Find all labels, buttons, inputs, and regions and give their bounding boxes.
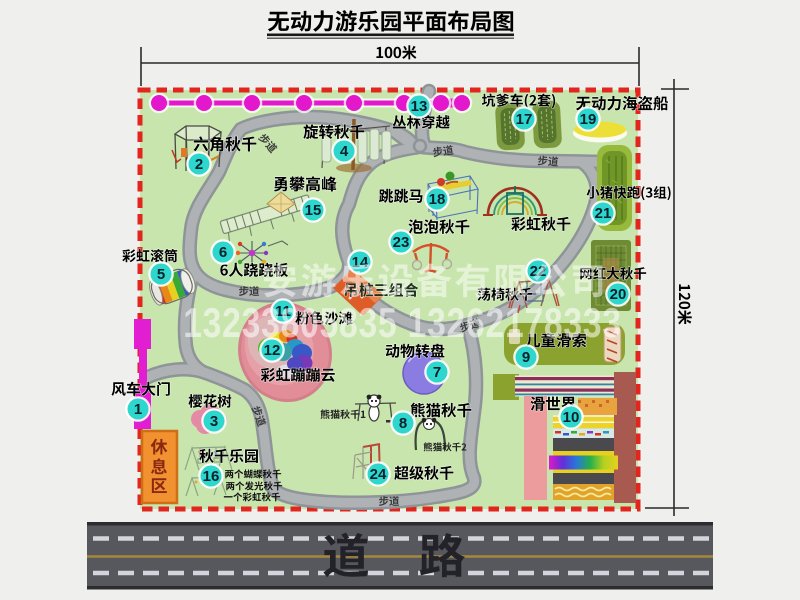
svg-text:21: 21 [595,205,612,222]
svg-text:5: 5 [157,266,165,283]
svg-text:15: 15 [305,202,322,219]
svg-text:6: 6 [219,244,227,261]
svg-text:19: 19 [580,111,597,128]
svg-text:23: 23 [393,234,410,251]
svg-text:13233805835 13262178333: 13233805835 13262178333 [183,301,622,347]
svg-text:18: 18 [429,191,446,208]
svg-text:17: 17 [516,111,533,128]
svg-text:7: 7 [433,364,441,381]
svg-text:24: 24 [370,466,387,483]
svg-text:3: 3 [210,413,218,430]
svg-text:4: 4 [340,143,349,160]
svg-text:16: 16 [203,468,220,485]
svg-text:1: 1 [134,401,142,418]
svg-text:9: 9 [522,349,530,366]
svg-text:2: 2 [195,156,203,173]
svg-text:8: 8 [399,415,407,432]
svg-text:10: 10 [563,409,580,426]
svg-text:13: 13 [411,98,428,115]
